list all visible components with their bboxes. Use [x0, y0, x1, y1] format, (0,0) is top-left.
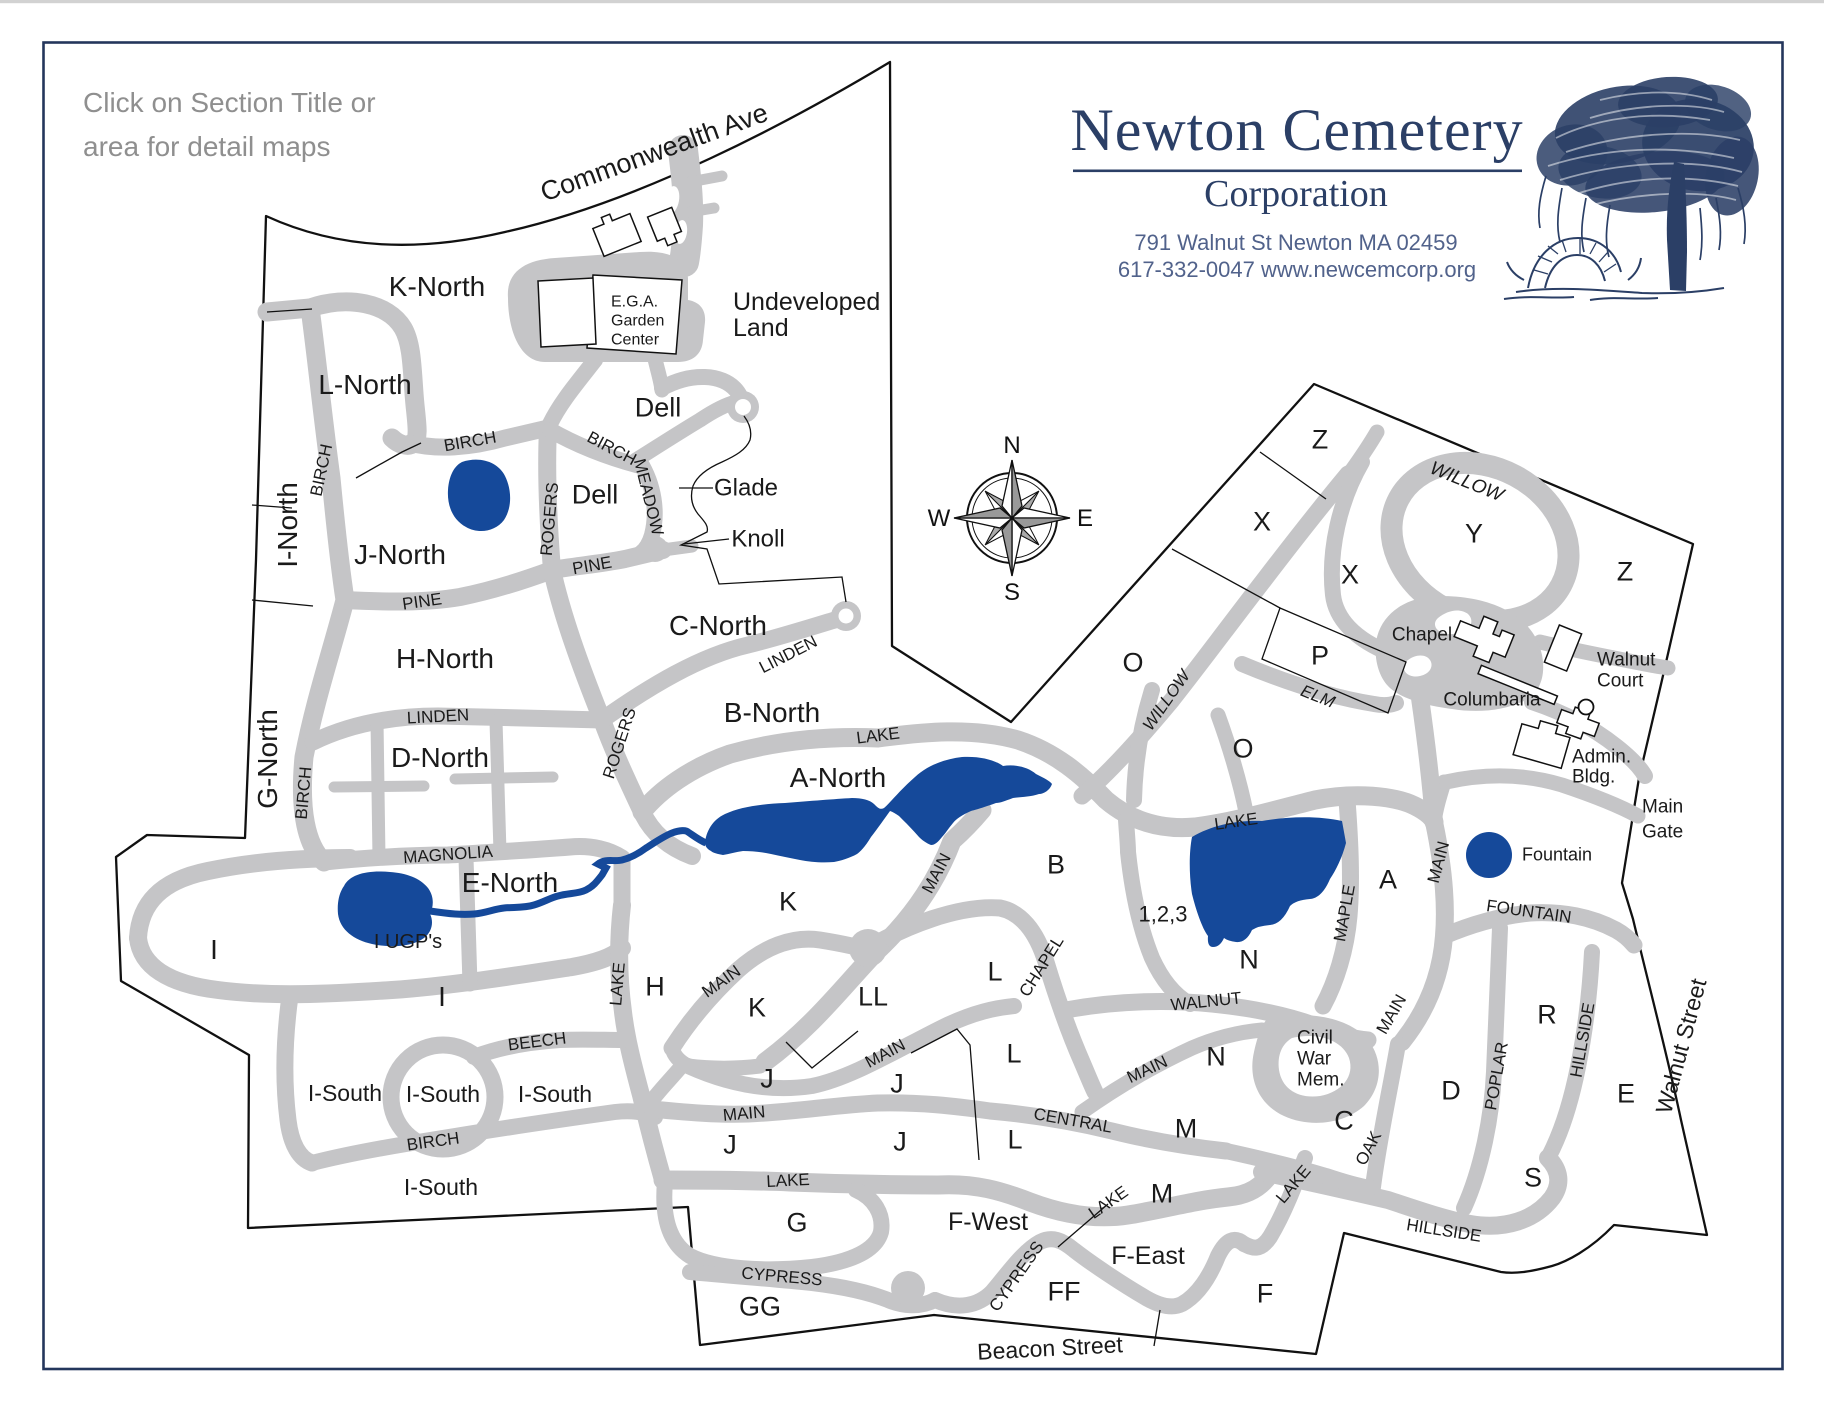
svg-text:M: M: [1151, 1179, 1174, 1209]
svg-text:E-North: E-North: [462, 867, 558, 898]
svg-text:Glade: Glade: [714, 474, 778, 501]
svg-text:I-South: I-South: [518, 1081, 592, 1107]
svg-text:B-North: B-North: [724, 697, 820, 728]
svg-text:Dell: Dell: [635, 392, 682, 422]
svg-text:area for detail maps: area for detail maps: [83, 131, 330, 162]
svg-text:War: War: [1297, 1049, 1332, 1070]
svg-text:S: S: [1524, 1163, 1542, 1193]
svg-text:Chapel: Chapel: [1392, 625, 1452, 646]
svg-text:B: B: [1047, 850, 1065, 880]
svg-text:LAKE: LAKE: [606, 962, 629, 1007]
svg-text:L-North: L-North: [318, 369, 411, 400]
svg-text:K-North: K-North: [389, 271, 485, 302]
svg-text:Court: Court: [1597, 671, 1644, 692]
svg-text:G: G: [786, 1208, 807, 1238]
svg-text:J-North: J-North: [354, 539, 446, 570]
svg-text:I: I: [210, 934, 218, 965]
svg-text:H-North: H-North: [396, 643, 494, 674]
svg-text:Dell: Dell: [572, 479, 619, 509]
svg-text:GG: GG: [739, 1292, 781, 1322]
svg-text:Civil: Civil: [1297, 1028, 1333, 1049]
svg-text:LINDEN: LINDEN: [406, 705, 469, 727]
svg-text:Corporation: Corporation: [1204, 173, 1388, 215]
svg-text:I-South: I-South: [404, 1174, 478, 1200]
svg-text:Y: Y: [1465, 519, 1483, 549]
svg-text:D-North: D-North: [391, 742, 489, 773]
svg-text:Admin.: Admin.: [1572, 747, 1631, 768]
svg-text:N: N: [1239, 945, 1259, 975]
svg-text:F-East: F-East: [1111, 1242, 1185, 1270]
svg-text:Z: Z: [1617, 557, 1634, 587]
svg-text:D: D: [1441, 1076, 1461, 1106]
svg-text:S: S: [1004, 579, 1020, 606]
svg-text:R: R: [1537, 1000, 1557, 1030]
svg-text:O: O: [1232, 734, 1253, 764]
svg-text:Gate: Gate: [1642, 822, 1683, 843]
svg-text:I-South: I-South: [406, 1081, 480, 1107]
svg-text:M: M: [1175, 1114, 1198, 1144]
svg-text:K: K: [779, 887, 797, 917]
svg-text:E: E: [1617, 1079, 1635, 1109]
svg-text:Z: Z: [1312, 424, 1329, 454]
svg-text:Center: Center: [611, 332, 660, 349]
svg-text:Fountain: Fountain: [1522, 844, 1592, 864]
svg-text:Knoll: Knoll: [731, 525, 784, 552]
svg-text:617-332-0047 www.newcemcorp.or: 617-332-0047 www.newcemcorp.org: [1118, 257, 1476, 282]
svg-text:791 Walnut St Newton MA 02459: 791 Walnut St Newton MA 02459: [1134, 230, 1457, 255]
svg-text:1,2,3: 1,2,3: [1139, 902, 1188, 927]
svg-text:Mem.: Mem.: [1297, 1070, 1345, 1091]
svg-text:N: N: [1206, 1042, 1226, 1072]
svg-text:Newton Cemetery: Newton Cemetery: [1070, 97, 1523, 163]
svg-text:X: X: [1253, 507, 1271, 537]
svg-text:LAKE: LAKE: [766, 1170, 810, 1191]
svg-text:J: J: [760, 1064, 774, 1094]
svg-text:F-West: F-West: [948, 1208, 1028, 1236]
svg-text:J: J: [723, 1130, 737, 1160]
svg-text:J: J: [890, 1069, 904, 1099]
svg-text:Bldg.: Bldg.: [1572, 767, 1615, 788]
svg-text:MAIN: MAIN: [722, 1102, 766, 1125]
svg-text:A: A: [1379, 865, 1397, 895]
svg-text:N: N: [1003, 432, 1020, 459]
svg-text:G-North: G-North: [252, 709, 283, 809]
svg-text:Click on Section Title or: Click on Section Title or: [83, 87, 376, 118]
svg-text:W: W: [928, 505, 951, 532]
svg-text:A-North: A-North: [790, 762, 886, 793]
svg-text:X: X: [1341, 560, 1359, 590]
svg-text:Undeveloped: Undeveloped: [733, 288, 880, 316]
svg-text:Walnut: Walnut: [1597, 650, 1656, 671]
svg-text:C-North: C-North: [669, 610, 767, 641]
svg-text:FF: FF: [1048, 1277, 1081, 1307]
svg-text:E.G.A.: E.G.A.: [611, 294, 658, 311]
svg-text:L: L: [1007, 1125, 1022, 1155]
svg-text:J: J: [893, 1127, 907, 1157]
svg-text:E: E: [1077, 505, 1093, 532]
svg-text:L: L: [987, 957, 1002, 987]
svg-text:I UGP's: I UGP's: [374, 931, 442, 953]
svg-text:LL: LL: [858, 982, 888, 1012]
svg-text:K: K: [748, 993, 766, 1023]
svg-text:L: L: [1006, 1039, 1021, 1069]
svg-text:Garden: Garden: [611, 313, 664, 330]
svg-text:Columbaria: Columbaria: [1443, 690, 1541, 711]
svg-text:I-South: I-South: [308, 1080, 382, 1106]
svg-text:Main: Main: [1642, 797, 1683, 818]
svg-text:I-North: I-North: [272, 482, 303, 568]
svg-text:Land: Land: [733, 314, 789, 342]
svg-text:C: C: [1334, 1106, 1354, 1136]
svg-text:F: F: [1257, 1279, 1274, 1309]
svg-text:O: O: [1122, 648, 1143, 678]
svg-text:H: H: [645, 972, 665, 1002]
svg-text:P: P: [1311, 641, 1329, 671]
svg-text:I: I: [438, 981, 446, 1012]
